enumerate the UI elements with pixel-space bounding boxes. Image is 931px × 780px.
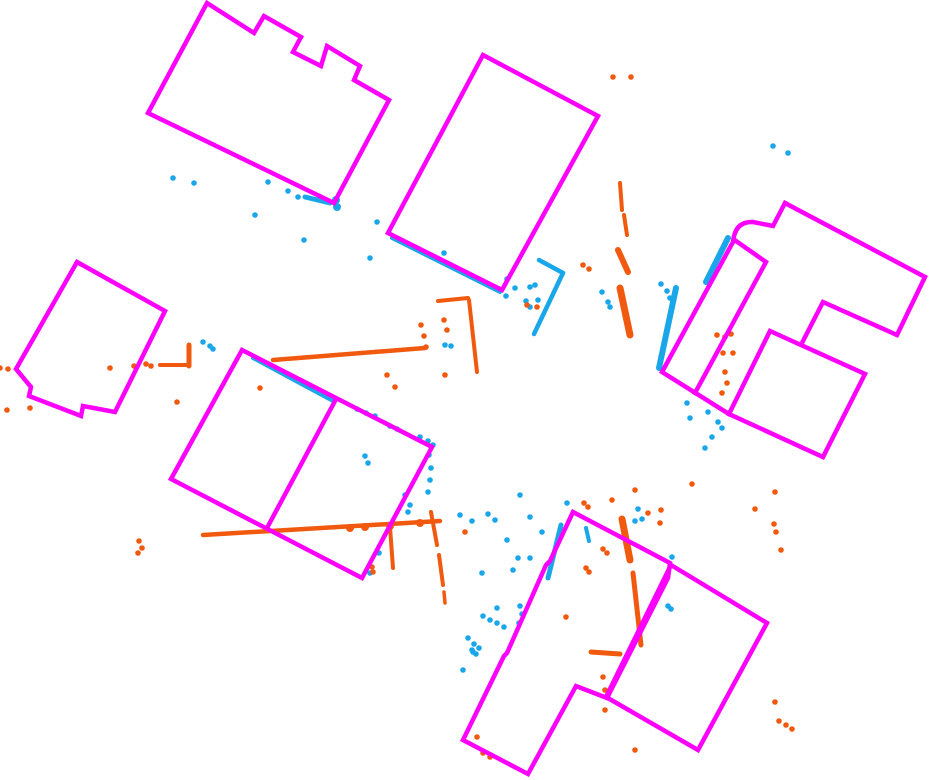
blue-point [719, 425, 725, 431]
blue-point [469, 518, 475, 524]
orange-point [27, 405, 33, 411]
orange-point [524, 302, 530, 308]
blue-point [479, 570, 485, 576]
orange-point [135, 550, 141, 556]
orange-point [4, 407, 10, 413]
blue-point [200, 339, 206, 345]
orange-point [0, 365, 3, 371]
blue-point [428, 465, 434, 471]
orange-point [143, 361, 149, 367]
orange-point [658, 507, 664, 513]
blue-point [539, 529, 545, 535]
blue-point [362, 453, 368, 459]
building-east-complex-center-block [729, 331, 865, 457]
blue-point [639, 516, 645, 522]
orange-point [148, 363, 154, 369]
blue-point [487, 617, 493, 623]
orange-point [586, 266, 592, 272]
blue-point-streak [534, 273, 563, 334]
orange-point [778, 547, 784, 553]
blue-point [441, 250, 447, 256]
blue-point [301, 237, 307, 243]
orange-point [416, 519, 424, 527]
orange-point-streak [624, 215, 627, 235]
orange-point [5, 366, 11, 372]
blue-point-streak [253, 358, 333, 401]
building-east-complex-partition [695, 241, 766, 393]
orange-point [628, 74, 634, 80]
blue-point [607, 304, 613, 310]
blue-point [476, 645, 482, 651]
blue-point [191, 180, 197, 186]
blue-point [605, 299, 611, 305]
blue-point [448, 343, 454, 349]
blue-point [527, 555, 533, 561]
blue-point [405, 509, 411, 515]
blue-point [515, 555, 521, 561]
blue-point [632, 518, 638, 524]
orange-point [789, 726, 795, 732]
orange-point-streak [444, 592, 445, 603]
blue-point [407, 502, 413, 508]
blue-point [658, 281, 664, 287]
blue-point [510, 567, 516, 573]
blue-point [635, 506, 641, 512]
blue-point [469, 647, 475, 653]
blue-point [667, 295, 673, 301]
orange-point [257, 385, 263, 391]
blue-point [295, 194, 301, 200]
orange-point [720, 350, 726, 356]
blue-point [492, 517, 498, 523]
blue-point [517, 492, 523, 498]
orange-point [730, 350, 736, 356]
orange-point [441, 317, 447, 323]
orange-point-streak [591, 652, 620, 654]
blue-point [785, 150, 791, 156]
orange-point [586, 569, 592, 575]
blue-point [532, 282, 538, 288]
blue-point [709, 434, 715, 440]
building-pointcloud-map [0, 0, 931, 780]
blue-point [668, 606, 674, 612]
orange-point [722, 369, 728, 375]
orange-point [600, 546, 606, 552]
orange-point [474, 734, 480, 740]
blue-point [684, 400, 690, 406]
orange-point [771, 521, 777, 527]
orange-point [772, 699, 778, 705]
orange-point [645, 510, 651, 516]
orange-point [370, 569, 376, 575]
blue-point [442, 342, 448, 348]
orange-point [604, 550, 610, 556]
blue-point [664, 288, 670, 294]
orange-point [719, 390, 725, 396]
orange-point [384, 372, 390, 378]
blue-point [715, 419, 721, 425]
blue-point [535, 297, 541, 303]
orange-point [585, 504, 591, 510]
orange-point [783, 722, 789, 728]
orange-point [418, 322, 424, 328]
blue-point [374, 219, 380, 225]
orange-point [752, 506, 758, 512]
blue-point [285, 188, 291, 194]
orange-point-streak [390, 527, 393, 568]
orange-point-streak [620, 288, 630, 335]
orange-point [139, 545, 145, 551]
blue-point [494, 605, 500, 611]
blue-point [457, 512, 463, 518]
blue-point [527, 284, 533, 290]
building-center-west-partition [267, 401, 335, 528]
orange-point-streak [439, 555, 443, 585]
blue-point-streak [392, 238, 500, 292]
orange-point [772, 489, 778, 495]
blue-point [669, 554, 675, 560]
building-west-small [16, 262, 165, 416]
orange-point-streak [431, 512, 437, 545]
orange-point [689, 481, 695, 487]
blue-point [427, 477, 433, 483]
blue-point-streak [586, 528, 589, 541]
blue-point [564, 500, 570, 506]
orange-point-streak [618, 250, 628, 272]
blue-point [501, 624, 507, 630]
blue-point [265, 179, 271, 185]
orange-point [714, 332, 720, 338]
orange-point [776, 718, 782, 724]
orange-point [632, 747, 638, 753]
orange-point [563, 614, 569, 620]
blue-point [471, 641, 477, 647]
orange-point [421, 333, 427, 339]
orange-point [174, 399, 180, 405]
blue-point [460, 667, 466, 673]
blue-point [425, 489, 431, 495]
orange-point-streak [620, 183, 622, 210]
blue-point [252, 212, 258, 218]
blue-point [517, 603, 523, 609]
blue-point [170, 175, 176, 181]
blue-point [504, 537, 510, 543]
orange-point-streak [469, 300, 477, 372]
orange-point [392, 384, 398, 390]
blue-point [512, 285, 518, 291]
orange-point [136, 538, 142, 544]
orange-point-streak [438, 298, 468, 301]
orange-point [600, 674, 606, 680]
building-north-center [388, 55, 598, 290]
building-south-east [606, 565, 767, 750]
blue-point [480, 613, 486, 619]
orange-point [462, 529, 468, 535]
orange-point [581, 500, 587, 506]
orange-point [361, 523, 369, 531]
orange-point [773, 529, 779, 535]
orange-point [444, 327, 450, 333]
blue-point [702, 445, 708, 451]
blue-point [503, 293, 509, 299]
orange-point [657, 520, 663, 526]
orange-point-streak [273, 348, 425, 360]
orange-point [534, 304, 540, 310]
orange-point [609, 497, 615, 503]
orange-point [442, 372, 448, 378]
blue-point [599, 289, 605, 295]
orange-point [610, 74, 616, 80]
orange-point-streak [203, 521, 440, 535]
blue-point [705, 409, 711, 415]
building-northwest-notched [148, 3, 389, 203]
blue-point [687, 415, 693, 421]
blue-point [465, 635, 471, 641]
blue-point [527, 514, 533, 520]
building-east-complex-upper-outline [785, 203, 925, 341]
orange-point [580, 262, 586, 268]
orange-point [423, 344, 429, 350]
blue-point [473, 651, 479, 657]
orange-point [346, 524, 354, 532]
blue-point [494, 620, 500, 626]
blue-point [210, 346, 216, 352]
blue-point [770, 143, 776, 149]
orange-point [632, 487, 638, 493]
building-east-complex-rounded-wing [662, 203, 785, 414]
blue-point [485, 511, 491, 517]
blue-point-streak [659, 288, 676, 368]
blue-point-streak [539, 260, 563, 273]
blue-point [365, 460, 371, 466]
figure-canvas [0, 0, 931, 780]
orange-point [602, 707, 608, 713]
orange-point [724, 380, 730, 386]
orange-point [107, 365, 113, 371]
blue-point [367, 255, 373, 261]
